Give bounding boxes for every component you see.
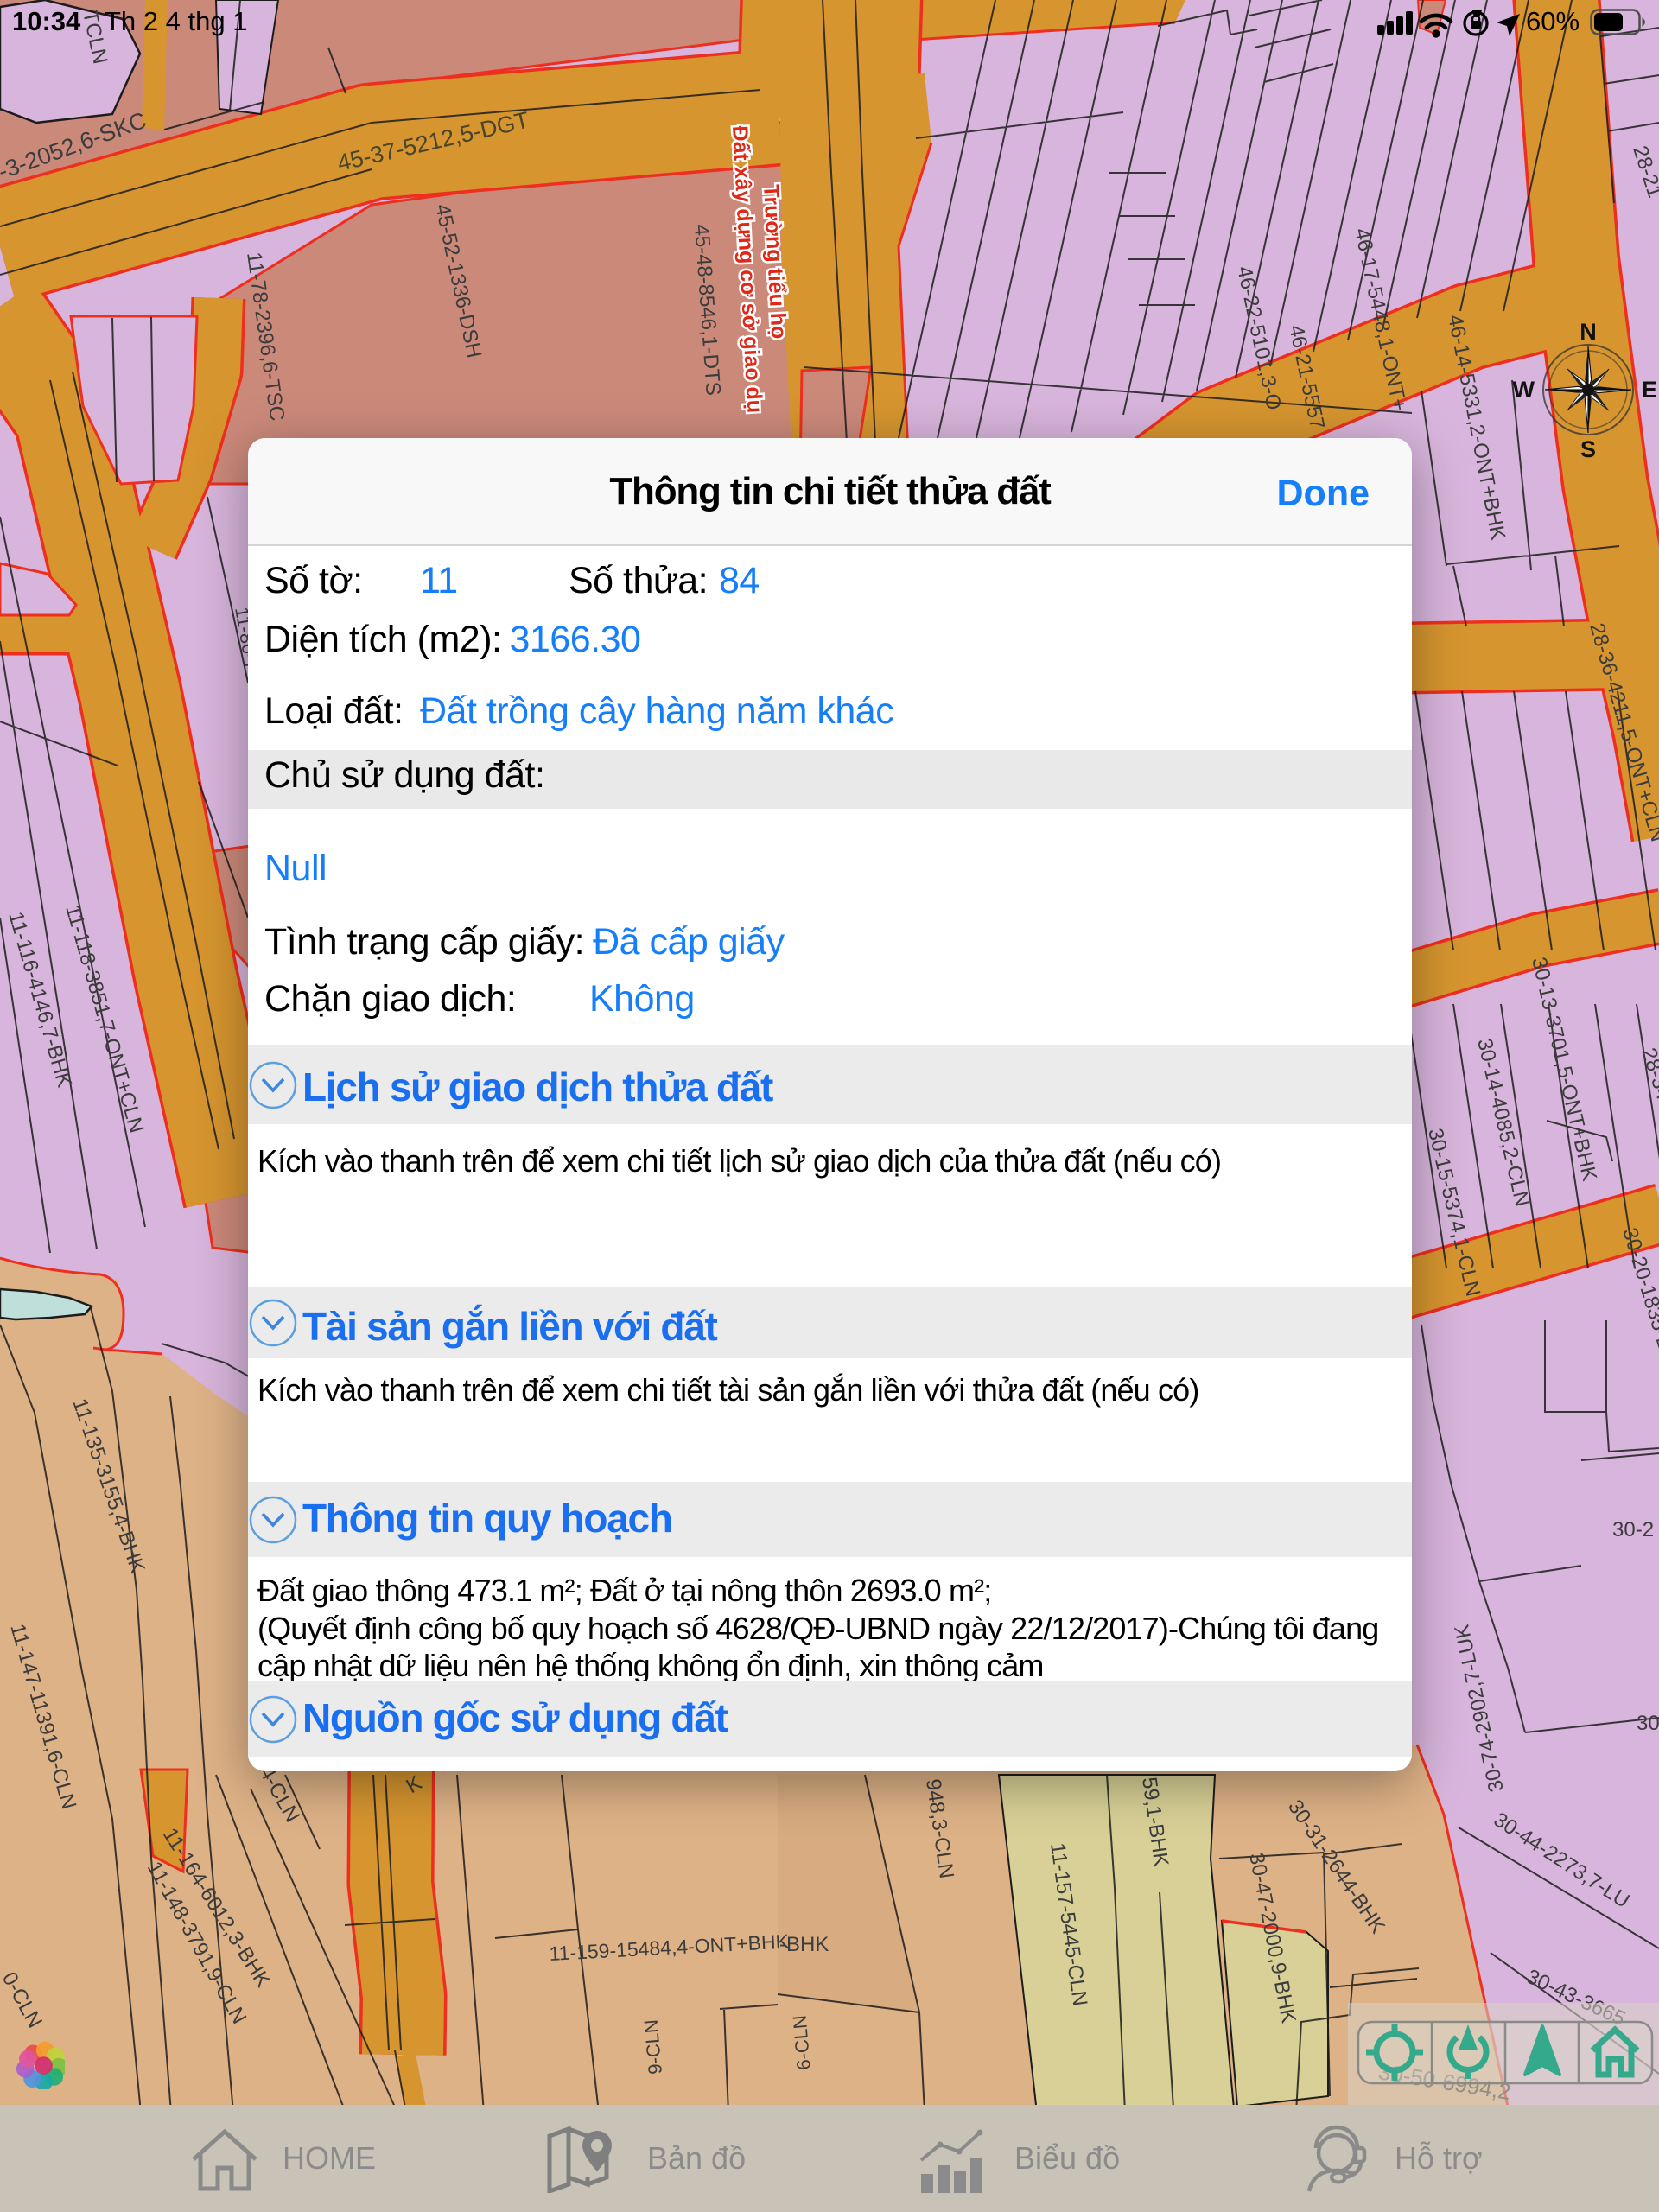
svg-text:30-2: 30-2: [1612, 1518, 1654, 1541]
svg-text:E: E: [1642, 377, 1657, 403]
svg-text:30: 30: [1637, 1712, 1659, 1735]
svg-text:S: S: [1580, 436, 1596, 462]
svg-text:-BHK: -BHK: [779, 1933, 829, 1956]
svg-text:W: W: [1513, 377, 1535, 403]
svg-text:N: N: [1580, 319, 1597, 345]
